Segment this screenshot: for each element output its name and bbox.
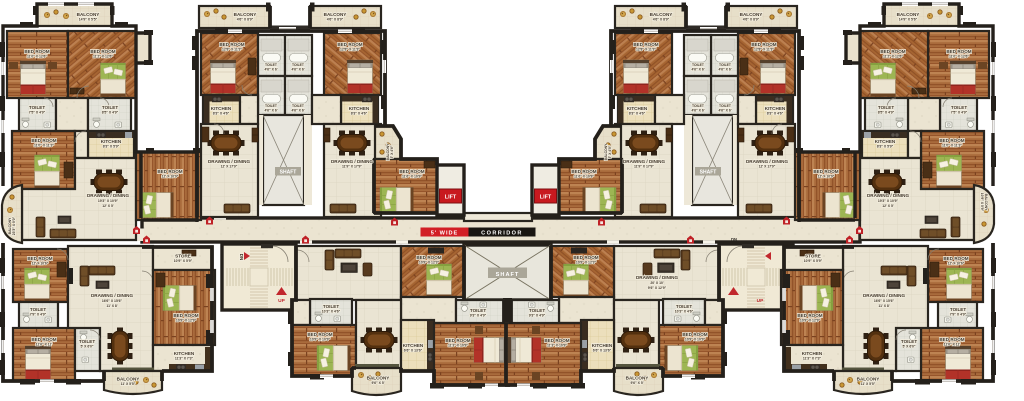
svg-text:CORRIDOR: CORRIDOR [481,231,523,237]
svg-text:TOILET: TOILET [878,105,894,110]
svg-text:BED ROOM: BED ROOM [813,169,838,174]
svg-text:11' X 5'5": 11' X 5'5" [861,382,876,386]
svg-text:TOILET: TOILET [79,339,95,344]
svg-text:12' X 10'6": 12' X 10'6" [32,261,49,265]
svg-text:6'6" X 13'6": 6'6" X 13'6" [593,348,612,352]
svg-text:5' X 6'0": 5' X 6'0" [902,344,915,348]
svg-text:10'9" X 10'9": 10'9" X 10'9" [310,337,331,341]
svg-text:12'8" X 11'3": 12'8" X 11'3" [754,47,774,51]
svg-text:16'6" X 15'6": 16'6" X 15'6" [102,299,123,303]
svg-text:12' X 5': 12' X 5' [882,204,894,208]
svg-text:BALCONY: BALCONY [857,377,880,382]
svg-text:19'3" X 10'9": 19'3" X 10'9" [878,199,899,203]
svg-text:8'3" X 5'9": 8'3" X 5'9" [103,144,120,148]
svg-text:TOILET: TOILET [719,63,732,67]
svg-text:4'6" X 6': 4'6" X 6' [691,108,704,112]
svg-text:4'6" X 6': 4'6" X 6' [264,67,277,71]
svg-text:DRAWING / DINING: DRAWING / DINING [636,275,679,280]
svg-text:BALCONY: BALCONY [650,12,673,17]
svg-text:LIFT: LIFT [540,194,552,200]
svg-text:8'3" X 4'6": 8'3" X 4'6" [351,111,368,115]
svg-text:9'6" X 5': 9'6" X 5' [630,381,643,385]
svg-text:11'0" X 12'6": 11'0" X 12'6" [27,54,47,58]
svg-text:BED ROOM: BED ROOM [939,138,964,143]
svg-text:8'5" X 4'9": 8'5" X 4'9" [878,110,895,114]
svg-text:10'9" X 12'9": 10'9" X 12'9" [800,318,821,322]
svg-text:BED ROOM: BED ROOM [24,49,49,54]
svg-text:SHAFT: SHAFT [700,169,717,175]
svg-text:UP: UP [757,298,764,304]
svg-text:BED ROOM: BED ROOM [544,338,569,343]
svg-text:9'6" X 12'9": 9'6" X 12'9" [648,286,667,290]
svg-text:11'0" X 11'3": 11'0" X 11'3" [942,143,962,147]
svg-text:BED ROOM: BED ROOM [939,337,964,342]
svg-text:DRAWING / DINING: DRAWING / DINING [208,159,251,164]
svg-text:12' X 17'9": 12' X 17'9" [759,164,776,168]
svg-text:20' X 10': 20' X 10' [650,281,663,285]
svg-text:11'3" X 7'3": 11'3" X 7'3" [803,356,822,360]
svg-text:BED ROOM: BED ROOM [445,338,470,343]
svg-text:BED ROOM: BED ROOM [416,255,441,260]
svg-text:BED ROOM: BED ROOM [31,337,56,342]
svg-text:11'6" X 10'9": 11'6" X 10'9" [574,174,594,178]
svg-text:4'6" X 8'9": 4'6" X 8'9" [237,17,254,21]
svg-text:BALCONY: BALCONY [234,12,257,17]
svg-text:10'9" X 12'9": 10'9" X 12'9" [176,318,197,322]
svg-text:11'0" X 11'3": 11'0" X 11'3" [34,143,54,147]
svg-text:BALCONY: BALCONY [367,376,390,381]
svg-text:BALCONY: BALCONY [324,12,347,17]
svg-text:BED ROOM: BED ROOM [399,169,424,174]
svg-text:12'8" X 11'3": 12'8" X 11'3" [340,47,360,51]
svg-text:UP: UP [278,298,285,304]
svg-text:7'9" X 4'9": 7'9" X 4'9" [950,312,967,316]
svg-text:4'6" X 6': 4'6" X 6' [291,67,304,71]
svg-text:8'5" X 4'9": 8'5" X 4'9" [102,110,119,114]
svg-text:11' X 8': 11' X 8' [878,304,889,308]
svg-text:14'9" X 5'5": 14'9" X 5'5" [79,17,98,21]
svg-text:7' X 4'6": 7' X 4'6" [390,145,394,158]
svg-text:4'6" X 6': 4'6" X 6' [718,67,731,71]
svg-text:TOILET: TOILET [719,104,732,108]
svg-text:TOILET: TOILET [692,63,705,67]
svg-text:BED ROOM: BED ROOM [307,332,332,337]
svg-text:11'2" X 12'6": 11'2" X 12'6" [883,54,903,58]
svg-text:7' X 4'5": 7' X 4'5" [608,145,612,158]
svg-text:BALCONY: BALCONY [740,12,763,17]
svg-text:12' X 17'9": 12' X 17'9" [221,164,238,168]
svg-text:BED ROOM: BED ROOM [219,42,244,47]
svg-text:7'5" X 4'9": 7'5" X 4'9" [951,110,968,114]
svg-text:11'2" X 12'6": 11'2" X 12'6" [93,54,113,58]
svg-text:BALCONY: BALCONY [626,376,649,381]
svg-text:TOILET: TOILET [29,105,45,110]
svg-text:TOILET: TOILET [292,63,305,67]
svg-text:BED ROOM: BED ROOM [27,256,52,261]
svg-text:BED ROOM: BED ROOM [337,42,362,47]
svg-text:STORE: STORE [175,254,191,259]
svg-text:4'6" X 6': 4'6" X 6' [718,108,731,112]
svg-text:TOILET: TOILET [676,304,692,309]
svg-text:DN: DN [731,237,737,242]
svg-text:11'6" X 11': 11'6" X 11' [944,342,961,346]
svg-text:KITCHEN: KITCHEN [765,106,786,111]
svg-text:12' X 10'6": 12' X 10'6" [948,261,965,265]
svg-text:TOILET: TOILET [265,63,278,67]
svg-text:BED ROOM: BED ROOM [571,169,596,174]
svg-text:KITCHEN: KITCHEN [403,343,424,348]
svg-text:DRAWING / DINING: DRAWING / DINING [87,193,130,198]
svg-text:KITCHEN: KITCHEN [875,139,896,144]
svg-text:10'9" X 12'3": 10'9" X 12'3" [576,260,597,264]
svg-text:TOILET: TOILET [692,104,705,108]
svg-text:SHAFT: SHAFT [496,272,520,278]
svg-text:TOILET: TOILET [265,104,278,108]
svg-text:4'6" X 6': 4'6" X 6' [291,108,304,112]
svg-text:12' X 10'9": 12' X 10'9" [162,174,179,178]
svg-text:BED ROOM: BED ROOM [943,256,968,261]
svg-text:10'3" X 4'6": 10'3" X 4'6" [675,309,694,313]
svg-text:DN: DN [239,254,244,261]
svg-text:LIFT: LIFT [445,194,457,200]
svg-text:TOILET: TOILET [950,307,966,312]
svg-text:11'3" X 10'9": 11'3" X 10'9" [547,343,567,347]
svg-text:19'3" X 10'9": 19'3" X 10'9" [98,199,119,203]
svg-text:4'6" X 8'9": 4'6" X 8'9" [327,17,344,21]
svg-text:KITCHEN: KITCHEN [592,343,613,348]
svg-text:11'6" X 10'9": 11'6" X 10'9" [402,174,422,178]
svg-text:11'3" X 10'9": 11'3" X 10'9" [448,343,468,347]
svg-text:9'3" X 4'9": 9'3" X 4'9" [529,313,546,317]
svg-text:16'6" X 15'6": 16'6" X 15'6" [874,299,895,303]
svg-text:TOILET: TOILET [901,339,917,344]
svg-text:DRAWING / DINING: DRAWING / DINING [867,193,910,198]
svg-text:TOILET: TOILET [102,105,118,110]
svg-text:BED ROOM: BED ROOM [31,138,56,143]
svg-text:BALCONY: BALCONY [897,12,920,17]
svg-text:KITCHEN: KITCHEN [349,106,370,111]
svg-text:TOILET: TOILET [292,104,305,108]
svg-text:9'3" X 4'9": 9'3" X 4'9" [470,313,487,317]
svg-text:STORE: STORE [805,254,821,259]
svg-text:11'9" X 17'9": 11'9" X 17'9" [342,164,362,168]
svg-text:6'6" X 13'6": 6'6" X 13'6" [404,348,423,352]
svg-text:8'3" X 4'6": 8'3" X 4'6" [213,111,230,115]
svg-text:10'9" X 5'9": 10'9" X 5'9" [980,193,984,212]
svg-text:BED ROOM: BED ROOM [90,49,115,54]
svg-text:12' X 10'9": 12' X 10'9" [818,174,835,178]
svg-text:BED ROOM: BED ROOM [173,313,198,318]
svg-text:11'3" X 7'3": 11'3" X 7'3" [175,356,194,360]
svg-text:BED ROOM: BED ROOM [880,49,905,54]
svg-text:KITCHEN: KITCHEN [101,139,122,144]
svg-text:BALCONY: BALCONY [77,12,100,17]
svg-text:BED ROOM: BED ROOM [797,313,822,318]
svg-text:11'9" X 17'9": 11'9" X 17'9" [634,164,654,168]
svg-text:12' X 5': 12' X 5' [102,204,114,208]
svg-text:TOILET: TOILET [470,308,486,313]
svg-text:9'6" X 5': 9'6" X 5' [371,381,384,385]
svg-text:10'9" X 10'9": 10'9" X 10'9" [685,337,706,341]
svg-text:10'9" X 5'9": 10'9" X 5'9" [174,259,193,263]
svg-text:DRAWING / DINING: DRAWING / DINING [331,159,374,164]
svg-text:DRAWING / DINING: DRAWING / DINING [623,159,666,164]
svg-text:11' X 8': 11' X 8' [106,304,117,308]
svg-text:11'0" X 12'6": 11'0" X 12'6" [949,54,969,58]
svg-text:BED ROOM: BED ROOM [946,49,971,54]
svg-text:4'6" X 8'9": 4'6" X 8'9" [653,17,670,21]
svg-text:BALCONY: BALCONY [117,377,140,382]
svg-text:23'3" X 5'0": 23'3" X 5'0" [12,216,16,235]
svg-text:TOILET: TOILET [529,308,545,313]
svg-text:10'9" X 5'9": 10'9" X 5'9" [804,259,823,263]
svg-text:BED ROOM: BED ROOM [633,42,658,47]
svg-text:4'6" X 6': 4'6" X 6' [691,67,704,71]
svg-text:DRAWING / DINING: DRAWING / DINING [746,159,789,164]
svg-text:5' X 6'0": 5' X 6'0" [80,344,93,348]
svg-text:8'3" X 5'9": 8'3" X 5'9" [877,144,894,148]
svg-text:4'6" X 6': 4'6" X 6' [264,108,277,112]
svg-text:BED ROOM: BED ROOM [751,42,776,47]
svg-text:12'8" X 11'3": 12'8" X 11'3" [636,47,656,51]
svg-text:SHAFT: SHAFT [280,169,297,175]
svg-text:TOILET: TOILET [323,304,339,309]
svg-text:TOILET: TOILET [951,105,967,110]
svg-text:4'6" X 8'9": 4'6" X 8'9" [743,17,760,21]
svg-text:12'8" X 11'3": 12'8" X 11'3" [222,47,242,51]
svg-text:KITCHEN: KITCHEN [211,106,232,111]
svg-text:10'3" X 4'6": 10'3" X 4'6" [322,309,341,313]
svg-text:BED ROOM: BED ROOM [682,332,707,337]
svg-text:KITCHEN: KITCHEN [627,106,648,111]
svg-text:7'9" X 4'9": 7'9" X 4'9" [30,312,47,316]
svg-text:DRAWING / DINING: DRAWING / DINING [91,293,134,298]
svg-text:BED ROOM: BED ROOM [157,169,182,174]
svg-text:11'6" X 11': 11'6" X 11' [36,342,53,346]
svg-text:5' WIDE: 5' WIDE [431,231,459,237]
svg-text:TOILET: TOILET [30,307,46,312]
svg-text:10'9" X 12'3": 10'9" X 12'3" [419,260,440,264]
svg-text:BED ROOM: BED ROOM [573,255,598,260]
svg-text:14'9" X 5'6": 14'9" X 5'6" [899,17,918,21]
svg-text:11' X 5'5": 11' X 5'5" [121,382,136,386]
svg-text:KITCHEN: KITCHEN [174,351,195,356]
svg-text:DRAWING / DINING: DRAWING / DINING [863,293,906,298]
svg-text:KITCHEN: KITCHEN [802,351,823,356]
svg-text:8'3" X 4'6": 8'3" X 4'6" [629,111,646,115]
svg-text:7'5" X 4'9": 7'5" X 4'9" [29,110,46,114]
svg-text:8'3" X 4'6": 8'3" X 4'6" [767,111,784,115]
